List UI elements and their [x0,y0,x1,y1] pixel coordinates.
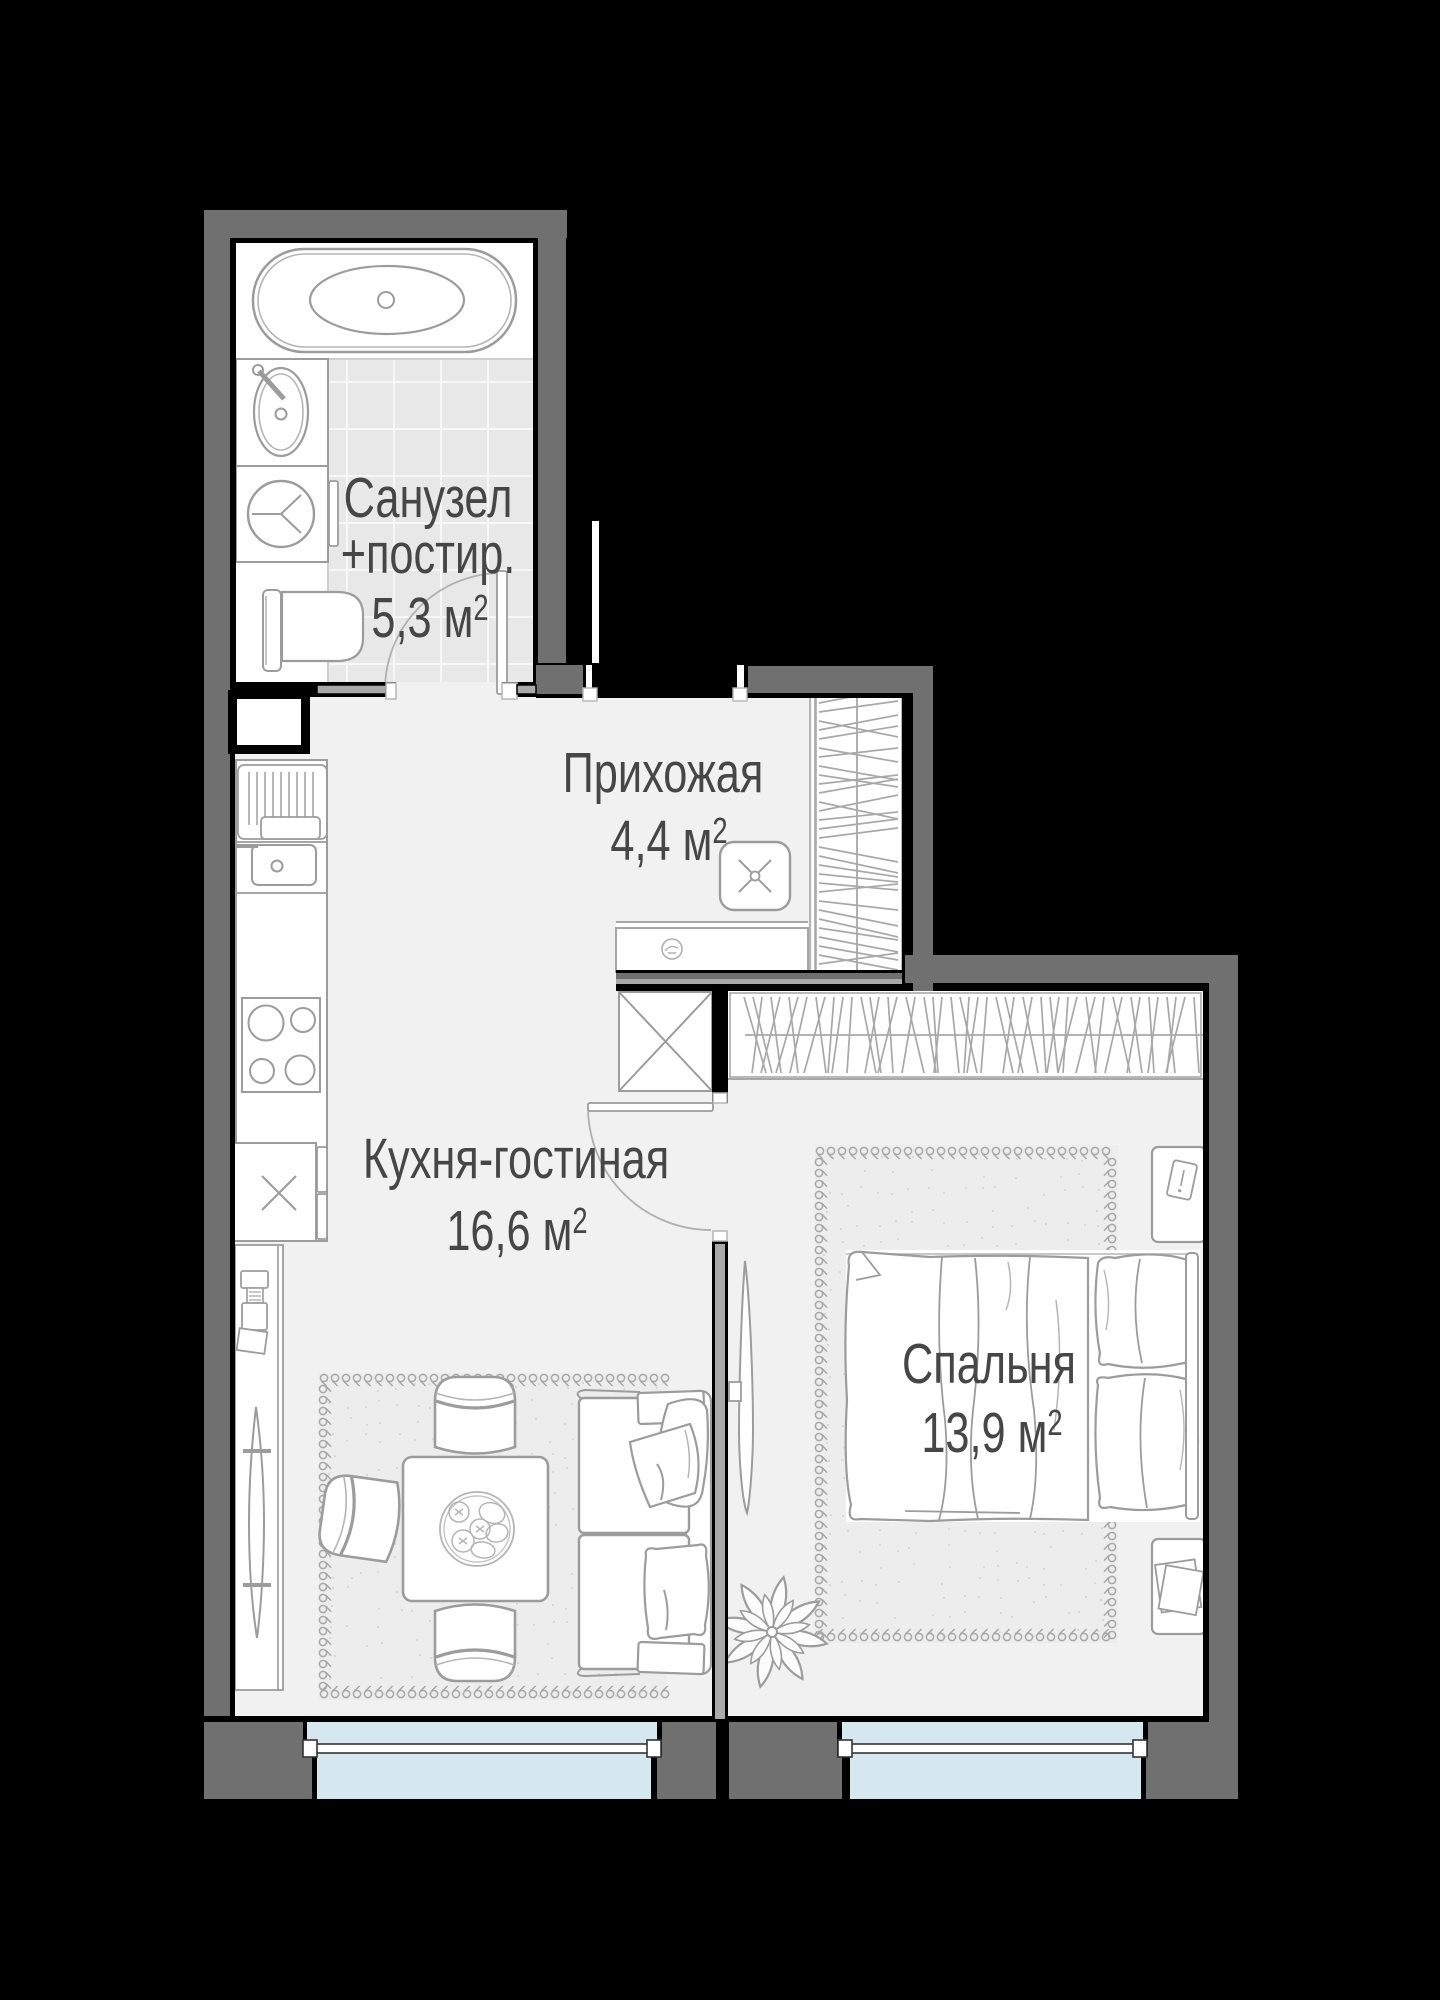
svg-text:16,6 м2: 16,6 м2 [446,1198,587,1262]
svg-text:Прихожая: Прихожая [563,740,764,804]
svg-text:Спальня: Спальня [902,1331,1076,1395]
svg-text:4,4 м2: 4,4 м2 [610,808,727,872]
svg-text:5,3 м2: 5,3 м2 [371,585,488,649]
svg-text:Кухня-гостиная: Кухня-гостиная [363,1126,669,1190]
svg-text:+постир.: +постир. [341,521,516,585]
svg-text:Санузел: Санузел [344,465,513,529]
svg-text:13,9 м2: 13,9 м2 [921,1400,1062,1464]
